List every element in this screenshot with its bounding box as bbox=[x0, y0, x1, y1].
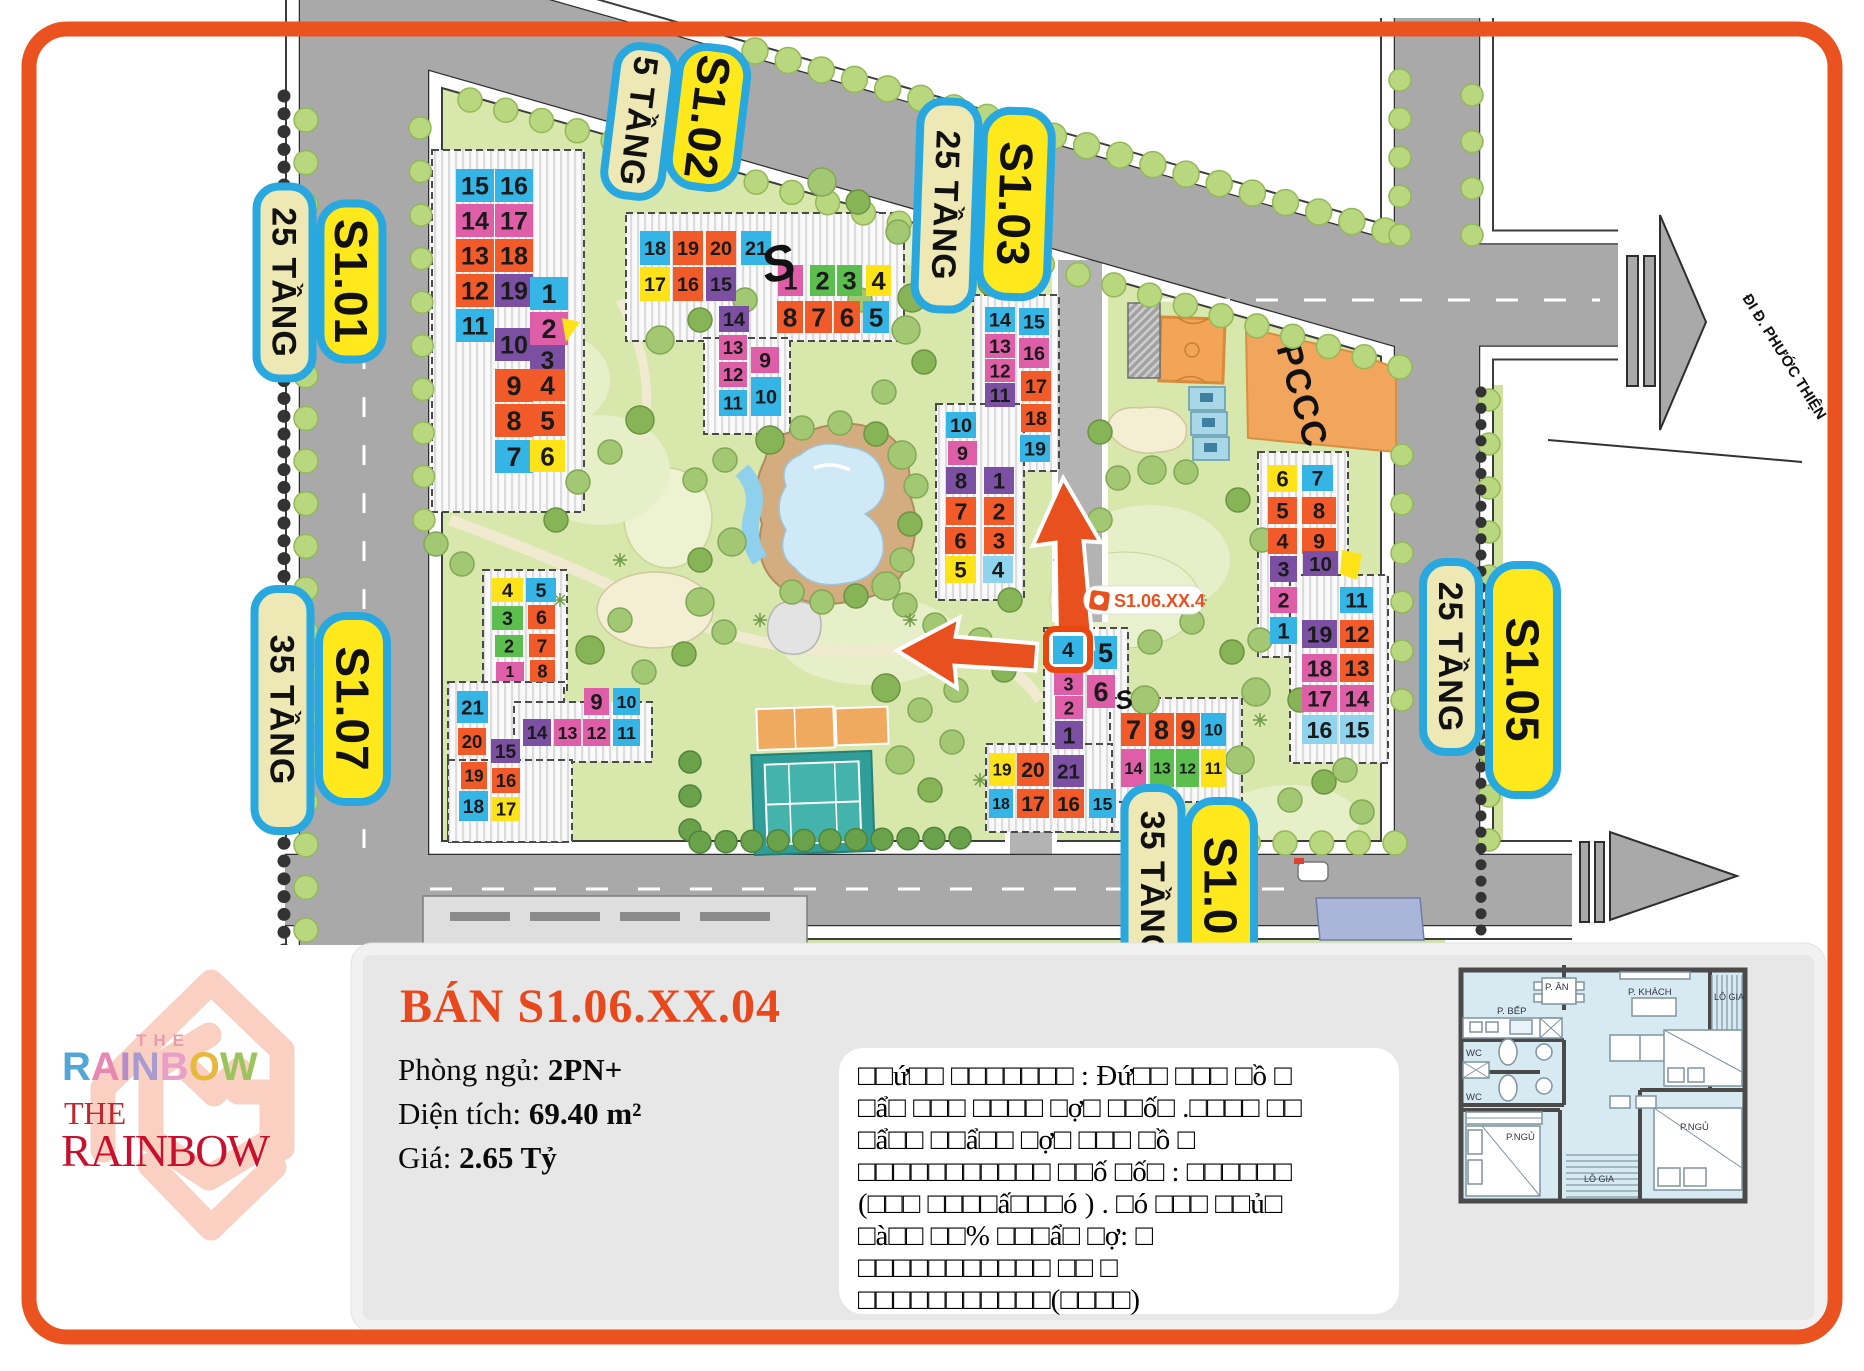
svg-text:□□□□□□□□□□□(□□□□): □□□□□□□□□□□(□□□□) bbox=[858, 1284, 1140, 1316]
svg-text:18: 18 bbox=[1025, 408, 1047, 430]
svg-text:17: 17 bbox=[1025, 376, 1047, 398]
svg-text:19: 19 bbox=[1024, 439, 1046, 461]
svg-text:9: 9 bbox=[957, 443, 968, 465]
svg-text:17: 17 bbox=[1307, 686, 1332, 711]
svg-text:5: 5 bbox=[1098, 638, 1113, 668]
svg-text:20: 20 bbox=[710, 238, 732, 260]
svg-text:1: 1 bbox=[1063, 722, 1076, 748]
svg-text:3: 3 bbox=[502, 608, 513, 630]
svg-text:7: 7 bbox=[955, 498, 968, 524]
svg-text:LÔ GIA: LÔ GIA bbox=[1584, 1174, 1614, 1184]
svg-text:12: 12 bbox=[1345, 622, 1370, 647]
svg-text:18: 18 bbox=[992, 796, 1010, 813]
svg-text:17: 17 bbox=[496, 799, 517, 820]
svg-text:9: 9 bbox=[506, 371, 521, 401]
svg-text:S1.06.XX.4: S1.06.XX.4 bbox=[1114, 591, 1205, 611]
svg-text:19: 19 bbox=[464, 766, 483, 786]
svg-text:3: 3 bbox=[993, 528, 1005, 553]
svg-text:13: 13 bbox=[1153, 761, 1171, 778]
svg-text:12: 12 bbox=[587, 723, 607, 743]
svg-text:5: 5 bbox=[536, 580, 547, 602]
svg-text:9: 9 bbox=[1313, 530, 1325, 554]
svg-text:Diện tích: 69.40 m²: Diện tích: 69.40 m² bbox=[398, 1096, 641, 1131]
svg-text:19: 19 bbox=[1307, 621, 1333, 647]
svg-text:12: 12 bbox=[461, 278, 489, 306]
svg-text:21: 21 bbox=[461, 696, 484, 719]
svg-text:Giá: 2.65 Tỷ: Giá: 2.65 Tỷ bbox=[398, 1140, 557, 1175]
svg-text:9: 9 bbox=[759, 349, 771, 373]
svg-text:6: 6 bbox=[1276, 466, 1288, 491]
svg-text:WC: WC bbox=[1466, 1048, 1482, 1059]
svg-text:10: 10 bbox=[1309, 553, 1332, 576]
svg-text:□à□□ □□% □□□ẩ□ □ợ: □: □à□□ □□% □□□ẩ□ □ợ: □ bbox=[858, 1220, 1153, 1252]
svg-text:15: 15 bbox=[1093, 794, 1113, 814]
svg-text:16: 16 bbox=[1307, 717, 1333, 743]
svg-text:10: 10 bbox=[617, 692, 637, 712]
svg-text:11: 11 bbox=[723, 393, 743, 414]
svg-text:4: 4 bbox=[992, 557, 1005, 582]
svg-text:4: 4 bbox=[871, 268, 885, 296]
svg-text:18: 18 bbox=[1307, 655, 1333, 681]
svg-text:5: 5 bbox=[1276, 498, 1288, 523]
svg-text:6: 6 bbox=[540, 441, 555, 471]
svg-text:8: 8 bbox=[506, 406, 521, 436]
svg-text:10: 10 bbox=[950, 415, 972, 437]
svg-text:20: 20 bbox=[462, 731, 483, 752]
svg-text:13: 13 bbox=[558, 723, 578, 743]
svg-text:P. KHÁCH: P. KHÁCH bbox=[1628, 987, 1672, 998]
svg-text:10: 10 bbox=[1204, 721, 1222, 739]
svg-text:13: 13 bbox=[989, 336, 1011, 358]
svg-text:11: 11 bbox=[990, 385, 1011, 407]
svg-text:1: 1 bbox=[506, 664, 515, 681]
svg-text:2: 2 bbox=[993, 498, 1006, 524]
svg-text:19: 19 bbox=[677, 238, 699, 260]
svg-text:20: 20 bbox=[1021, 759, 1044, 782]
svg-text:14: 14 bbox=[1124, 760, 1143, 778]
svg-text:14: 14 bbox=[989, 310, 1011, 332]
svg-text:9: 9 bbox=[1180, 715, 1195, 745]
svg-text:35 TẦNG: 35 TẦNG bbox=[262, 635, 300, 786]
svg-text:□□□□□□□□□□□ □□ố □ố□ : □□□□□□: □□□□□□□□□□□ □□ố □ố□ : □□□□□□ bbox=[858, 1156, 1292, 1188]
svg-text:2: 2 bbox=[504, 636, 514, 656]
svg-text:P. BẾP: P. BẾP bbox=[1497, 1006, 1526, 1017]
svg-text:□ẩ□□ □□ẩ□□ □ợ□ □□□ □ồ □: □ẩ□□ □□ẩ□□ □ợ□ □□□ □ồ □ bbox=[858, 1124, 1196, 1156]
svg-text:11: 11 bbox=[462, 313, 489, 341]
svg-text:6: 6 bbox=[840, 302, 855, 332]
svg-text:16: 16 bbox=[496, 770, 517, 791]
svg-text:14: 14 bbox=[1345, 686, 1370, 711]
svg-text:2: 2 bbox=[541, 314, 556, 344]
svg-text:3: 3 bbox=[1278, 558, 1290, 582]
svg-text:6: 6 bbox=[954, 528, 966, 553]
svg-text:10: 10 bbox=[755, 387, 777, 409]
svg-text:8: 8 bbox=[783, 302, 798, 332]
svg-text:15: 15 bbox=[461, 173, 489, 201]
svg-text:17: 17 bbox=[644, 274, 666, 296]
svg-text:7: 7 bbox=[537, 636, 548, 657]
svg-text:S1.0: S1.0 bbox=[1194, 837, 1246, 936]
svg-text:S1.05: S1.05 bbox=[1496, 617, 1548, 742]
svg-text:6: 6 bbox=[536, 607, 547, 629]
svg-text:1: 1 bbox=[1277, 618, 1289, 643]
svg-text:□□□□□□□□□□□ □□ □: □□□□□□□□□□□ □□ □ bbox=[858, 1252, 1118, 1284]
svg-text:11: 11 bbox=[617, 723, 636, 743]
svg-text:4: 4 bbox=[1062, 639, 1074, 662]
svg-text:18: 18 bbox=[644, 238, 666, 260]
svg-text:8: 8 bbox=[955, 468, 967, 493]
svg-text:11: 11 bbox=[1205, 760, 1222, 778]
svg-text:11: 11 bbox=[1345, 589, 1368, 613]
svg-text:16: 16 bbox=[500, 173, 528, 201]
svg-text:15: 15 bbox=[1023, 312, 1045, 334]
svg-text:9: 9 bbox=[590, 689, 602, 714]
svg-text:15: 15 bbox=[710, 274, 732, 296]
svg-text:13: 13 bbox=[461, 243, 489, 271]
svg-text:18: 18 bbox=[500, 243, 528, 271]
svg-text:14: 14 bbox=[723, 309, 745, 331]
svg-text:7: 7 bbox=[1312, 467, 1324, 491]
svg-text:RAINBOW: RAINBOW bbox=[62, 1045, 258, 1089]
svg-text:25 TẦNG: 25 TẦNG bbox=[264, 207, 302, 358]
svg-text:13: 13 bbox=[723, 337, 744, 358]
svg-text:12: 12 bbox=[1179, 760, 1196, 777]
svg-text:1: 1 bbox=[541, 279, 556, 309]
svg-text:15: 15 bbox=[495, 742, 517, 763]
svg-text:7: 7 bbox=[506, 442, 521, 472]
svg-text:LÔ GIA: LÔ GIA bbox=[1714, 992, 1744, 1002]
svg-text:7: 7 bbox=[1126, 715, 1141, 745]
svg-text:P.NGỦ: P.NGỦ bbox=[1680, 1121, 1709, 1133]
svg-text:16: 16 bbox=[677, 274, 699, 296]
svg-text:□ẩ□ □□□ □□□□ □ợ□ □□ố□ .□□□□ □□: □ẩ□ □□□ □□□□ □ợ□ □□ố□ .□□□□ □□ bbox=[858, 1092, 1302, 1124]
svg-text:18: 18 bbox=[463, 797, 485, 818]
svg-text:1: 1 bbox=[993, 468, 1005, 493]
svg-text:35 TẦNG: 35 TẦNG bbox=[1133, 811, 1171, 962]
svg-text:5: 5 bbox=[869, 302, 884, 332]
svg-text:3: 3 bbox=[1063, 674, 1073, 694]
svg-text:4: 4 bbox=[502, 580, 513, 602]
svg-text:10: 10 bbox=[500, 332, 528, 360]
svg-text:12: 12 bbox=[723, 364, 744, 385]
svg-text:S1.01: S1.01 bbox=[325, 219, 377, 344]
svg-text:S1.03: S1.03 bbox=[987, 141, 1043, 268]
svg-text:16: 16 bbox=[1023, 343, 1045, 365]
svg-text:4: 4 bbox=[1277, 530, 1289, 554]
svg-text:S1.07: S1.07 bbox=[326, 646, 378, 771]
svg-text:P.NGỦ: P.NGỦ bbox=[1506, 1131, 1535, 1143]
svg-text:2: 2 bbox=[1278, 589, 1290, 613]
svg-text:P. ĂN: P. ĂN bbox=[1545, 982, 1569, 993]
svg-text:19: 19 bbox=[500, 278, 528, 306]
svg-text:4: 4 bbox=[540, 370, 555, 400]
svg-text:Phòng ngủ: 2PN+: Phòng ngủ: 2PN+ bbox=[398, 1052, 622, 1087]
svg-text:5: 5 bbox=[954, 557, 966, 582]
svg-text:19: 19 bbox=[992, 760, 1011, 780]
svg-text:25 TẦNG: 25 TẦNG bbox=[924, 130, 967, 282]
svg-text:17: 17 bbox=[1021, 793, 1044, 816]
svg-text:RAINBOW: RAINBOW bbox=[61, 1125, 271, 1176]
svg-text:2: 2 bbox=[1064, 698, 1075, 719]
svg-text:BÁN S1.06.XX.04: BÁN S1.06.XX.04 bbox=[400, 980, 780, 1033]
svg-text:8: 8 bbox=[537, 661, 547, 681]
svg-text:13: 13 bbox=[1345, 656, 1370, 681]
svg-text:15: 15 bbox=[1345, 718, 1370, 743]
svg-text:8: 8 bbox=[1313, 498, 1325, 523]
svg-text:5: 5 bbox=[540, 405, 555, 435]
svg-text:6: 6 bbox=[1093, 677, 1108, 707]
svg-text:12: 12 bbox=[989, 361, 1010, 382]
svg-text:14: 14 bbox=[461, 208, 489, 236]
svg-text:WC: WC bbox=[1466, 1092, 1482, 1103]
svg-text:7: 7 bbox=[811, 302, 826, 332]
svg-text:2: 2 bbox=[815, 268, 829, 296]
svg-text:16: 16 bbox=[1057, 793, 1080, 816]
svg-text:□□ứ□□ □□□□□□□ : Đứ□□ □□□ □ồ □: □□ứ□□ □□□□□□□ : Đứ□□ □□□ □ồ □ bbox=[858, 1060, 1292, 1092]
svg-text:8: 8 bbox=[1154, 715, 1169, 745]
svg-text:3: 3 bbox=[842, 268, 856, 296]
svg-text:(□□□ □□□□ấ□□□ó ) . □ó □□□ □□ủ□: (□□□ □□□□ấ□□□ó ) . □ó □□□ □□ủ□ bbox=[858, 1188, 1283, 1220]
svg-text:17: 17 bbox=[500, 208, 528, 236]
svg-text:21: 21 bbox=[1057, 760, 1080, 783]
svg-text:14: 14 bbox=[527, 722, 548, 743]
svg-text:25 TẦNG: 25 TẦNG bbox=[1431, 582, 1469, 733]
